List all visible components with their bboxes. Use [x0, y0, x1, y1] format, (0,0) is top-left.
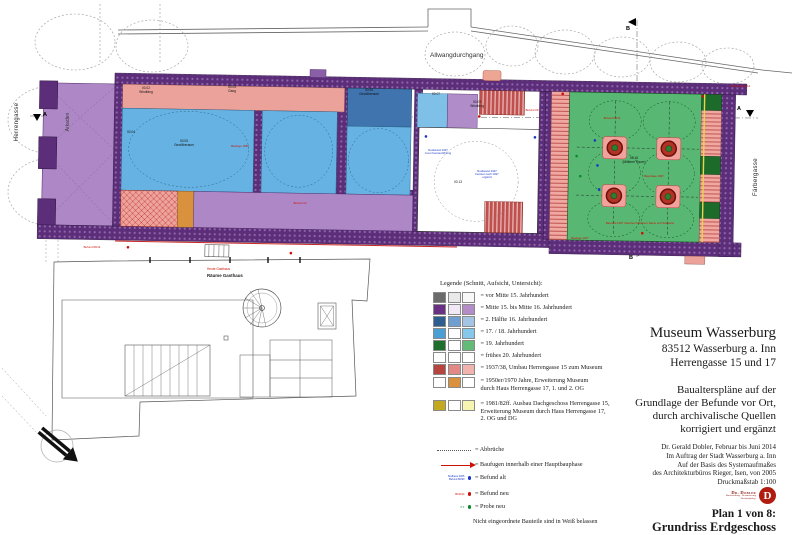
street-label-herrengasse: Herrengasse — [14, 103, 20, 142]
legend-swatch — [433, 352, 446, 363]
legend-swatch — [448, 377, 461, 388]
legend-label: = vor Mitte 15. Jahrhundert — [481, 292, 549, 300]
legend-row: = 1950er/1970 Jahre, Erweiterung Museum … — [433, 377, 588, 392]
legend-swatch — [462, 364, 475, 375]
legend-label: = Probe neu — [475, 503, 505, 511]
sheet-title: Museum Wasserburg — [650, 325, 776, 342]
legend-symbol-row: P 1 = Probe neu — [433, 503, 505, 511]
befund-neu-dot — [468, 492, 472, 496]
section-marker-a-left: A — [43, 112, 47, 118]
sheet-address: 83512 Wasserburg a. Inn — [662, 343, 776, 355]
legend-swatch — [462, 304, 475, 315]
arcade-pillars — [37, 81, 58, 227]
legend-swatch — [462, 400, 475, 411]
legend-swatch — [433, 377, 446, 388]
legend-swatch — [462, 377, 475, 388]
gasthaus-red-label: Heute Gasthaus — [207, 267, 230, 271]
south-rooms-purple — [193, 191, 413, 231]
befund-alt-dot — [468, 476, 472, 480]
legend-swatch — [448, 352, 461, 363]
annotation: Nordwand 1937 Fenster nach 1937 ergänzt — [475, 170, 498, 180]
legend-symbol-row: = Abbrüche — [433, 446, 504, 454]
legend-label: = Mitte 15. bis Mitte 16. Jahrhundert — [481, 304, 572, 312]
dobler-logo: Dr. Dobler Bauforschung · Restaurierung … — [726, 487, 776, 504]
annotation: Befund 12 — [294, 202, 307, 205]
legend-row: = 19. Jahrhundert — [433, 340, 524, 351]
annotation: Befund 09/14 — [604, 117, 621, 120]
legend-swatch — [433, 328, 446, 339]
legend-swatch — [448, 340, 461, 351]
room-16c-vault — [347, 88, 412, 127]
street-label-faerbergasse: Färbergasse — [753, 158, 759, 196]
legend-label: = 1937/38, Umbau Herrengasse 15 zum Muse… — [481, 364, 603, 372]
legend-swatch — [448, 328, 461, 339]
room-south-1937 — [120, 190, 178, 227]
befund-alt-example: Südhaus 2005 Befund 80/90 — [433, 475, 465, 481]
legend-row: = 1937/38, Umbau Herrengasse 15 zum Muse… — [433, 364, 602, 375]
legend-swatch — [448, 316, 461, 327]
staircase-west-green-hall — [549, 92, 570, 240]
legend-label: = 17. / 18. Jahrhundert — [481, 328, 537, 336]
annotation: Befund 09 — [526, 109, 539, 112]
legend-swatch — [448, 364, 461, 375]
annotation: Baufuge 1580 — [231, 145, 248, 148]
logo-mark-icon: D — [759, 487, 776, 504]
room-vault-a — [121, 108, 254, 192]
room-label: 00.03 Gang — [228, 86, 236, 94]
east-wall-faerbergasse — [699, 94, 722, 242]
room-vault-b — [261, 111, 337, 194]
plan-number: Plan 1 von 8: — [712, 508, 776, 520]
section-marker-a-right: A — [737, 106, 741, 112]
gasthaus-outline — [52, 257, 370, 440]
passage-label: Allwangdurchgang — [430, 52, 483, 59]
annotation: Bauphase 1937 — [644, 175, 664, 178]
room-label: 00.02 Windfang — [139, 87, 152, 95]
room-label: 00.06 Gewölberaum — [359, 89, 379, 97]
legend-swatch — [433, 364, 446, 375]
annotation: Baunaht 1937 zwischen Mittlerem Raum und… — [575, 222, 705, 225]
legend-row: = 17. / 18. Jahrhundert — [433, 328, 537, 339]
legend-row: = frühes 20. Jahrhundert — [433, 352, 541, 363]
legend-label: = 1981/82ff. Ausbau Dachgeschoss Herreng… — [481, 400, 610, 423]
legend-row: = vor Mitte 15. Jahrhundert — [433, 292, 549, 303]
befund-neu-example: 80/2014 — [433, 493, 465, 496]
legend-label: = frühes 20. Jahrhundert — [481, 352, 542, 360]
room-vault-c — [346, 126, 411, 195]
logo-subtitle: Bauforschung · Restaurierung Denkmalpfle… — [726, 495, 756, 501]
annotation: Baufuge 1937 — [571, 237, 588, 240]
legend-label: = 1950er/1970 Jahre, Erweiterung Museum … — [481, 377, 589, 392]
legend-symbol-row: Südhaus 2005 Befund 80/90 = Befund alt — [433, 474, 506, 482]
legend-row: = 1981/82ff. Ausbau Dachgeschoss Herreng… — [433, 400, 610, 423]
legend-swatch — [433, 400, 446, 411]
legend-swatch — [462, 316, 475, 327]
sheet-description: Baualterspläne auf der Grundlage der Bef… — [635, 384, 776, 436]
section-marker-b-top: B — [626, 26, 630, 32]
legend-label: = 2. Hälfte 16. Jahrhundert — [481, 316, 548, 324]
probe-neu-dot — [468, 505, 472, 509]
legend-swatch — [462, 292, 475, 303]
arkaden-label: Arkaden — [65, 113, 71, 132]
legend-swatch — [433, 304, 446, 315]
legend-swatch — [448, 292, 461, 303]
sheet-credits: Dr. Gerald Dobler, Februar bis Juni 2014… — [652, 443, 776, 487]
staircase-north — [479, 90, 524, 115]
legend-swatch — [462, 328, 475, 339]
section-marker-b-bottom: B — [629, 255, 633, 261]
legend-label: = Befund alt — [475, 474, 506, 482]
bay-projection — [483, 70, 501, 80]
legend-label: = Abbrüche — [475, 446, 504, 454]
room-label: 00.05 Gewölberaum — [174, 140, 194, 148]
legend-row: = 2. Hälfte 16. Jahrhundert — [433, 316, 547, 327]
legend-label: = 19. Jahrhundert — [481, 340, 525, 348]
demolition-line-symbol — [437, 450, 471, 451]
legend-symbol-row: = Baufugen innerhalb einer Hauptbauphase — [433, 461, 583, 469]
legend-swatch — [433, 316, 446, 327]
room-label: 00.09 Windfang — [470, 101, 483, 109]
allwang-passage-outline — [118, 9, 792, 73]
legend-swatch — [462, 352, 475, 363]
legend-swatch — [448, 400, 461, 411]
legend-label: = Befund neu — [475, 490, 509, 498]
annotation: Nordwand 1937 zuvor Fensteröffnung — [425, 149, 451, 155]
legend-swatch — [462, 340, 475, 351]
legend-swatch — [448, 304, 461, 315]
gasthaus-label: Räume Gasthaus — [207, 273, 243, 278]
building-joint-arrow-symbol — [441, 465, 471, 466]
legend-symbol-row: 80/2014 = Befund neu — [433, 490, 509, 498]
room-label: 00.16 (Mittlerer Raum) — [622, 157, 645, 165]
room-label: 00.13 — [454, 181, 462, 185]
room-label: 00.04 — [127, 131, 135, 135]
annotation: Nordostwand 14 — [730, 85, 750, 88]
legend-footer: Nicht eingeordnete Bauteile sind in Weiß… — [433, 518, 597, 526]
annotation: Befund 80/14 — [84, 246, 101, 249]
staircase-south — [484, 201, 523, 233]
green-hall-19jh — [567, 92, 702, 242]
room-label: 00.07 — [432, 93, 440, 97]
plan-sheet: { "plan": { "streets": { "left": "Herren… — [0, 0, 800, 533]
orange-insert-1950 — [177, 191, 194, 227]
probe-neu-example: P 1 — [433, 506, 465, 509]
legend-swatch — [433, 292, 446, 303]
legend-swatch — [433, 340, 446, 351]
legend-label: = Baufugen innerhalb einer Hauptbauphase — [475, 461, 583, 469]
sheet-address-2: Herrengasse 15 und 17 — [670, 357, 776, 369]
legend-row: = Mitte 15. bis Mitte 16. Jahrhundert — [433, 304, 572, 315]
legend-title: Legende (Schnitt, Aufsicht, Untersicht): — [440, 280, 542, 287]
